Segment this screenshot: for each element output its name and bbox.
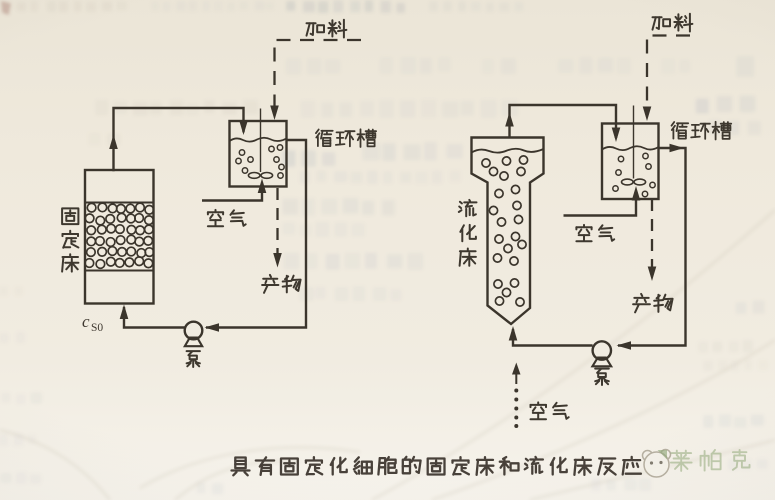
svg-text:S0: S0	[91, 322, 103, 334]
svg-text:c: c	[82, 312, 90, 331]
